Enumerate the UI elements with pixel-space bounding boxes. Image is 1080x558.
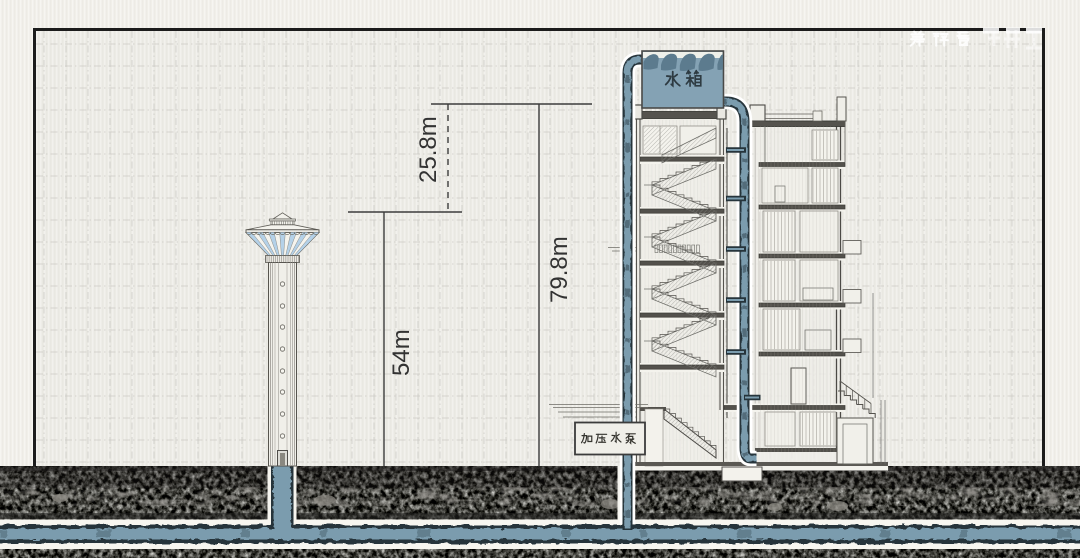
svg-text:54m: 54m [388, 329, 415, 376]
svg-text:79.8m: 79.8m [546, 236, 573, 303]
svg-text:25.8m: 25.8m [415, 116, 442, 183]
